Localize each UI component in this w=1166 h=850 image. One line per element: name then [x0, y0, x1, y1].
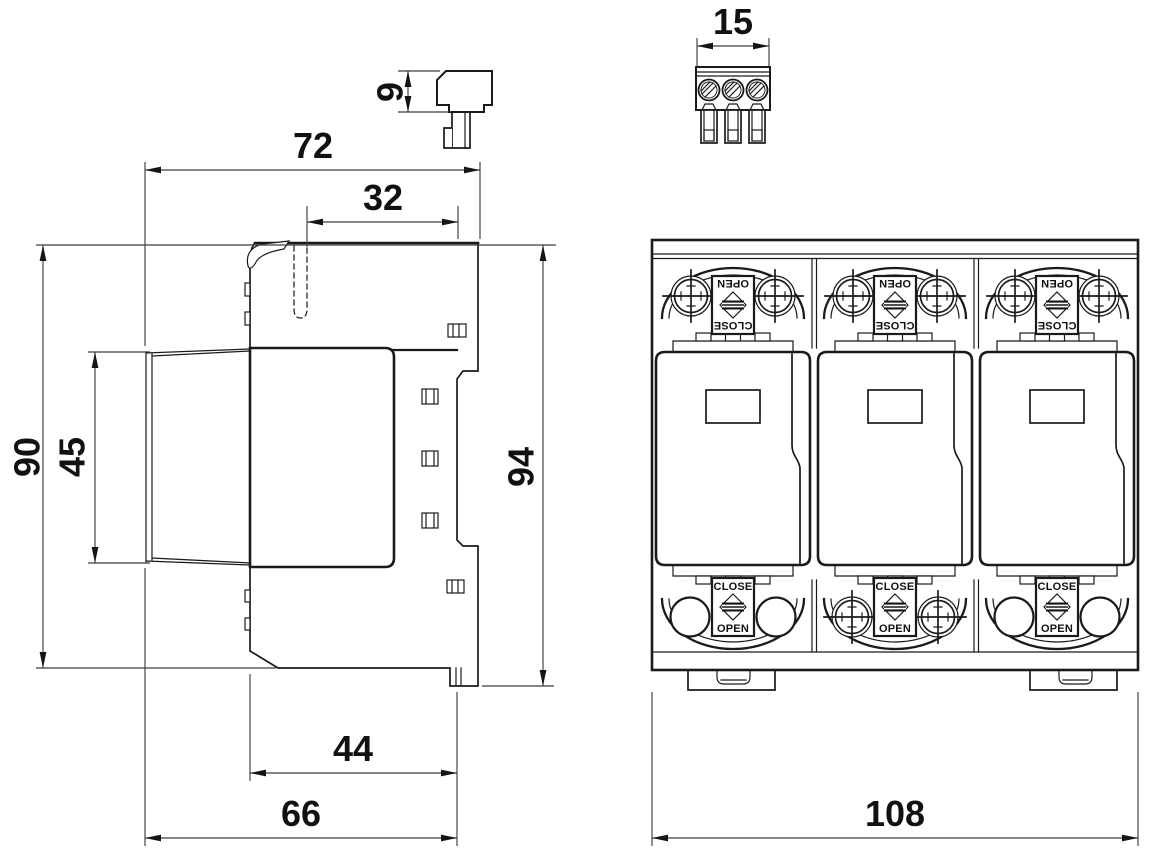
- dimension-arrow: [652, 835, 668, 842]
- dimension-arrow: [250, 770, 266, 777]
- dimension-72-label: 72: [293, 125, 333, 166]
- connector-pin-3: [749, 110, 765, 143]
- dimension-arrow: [697, 43, 713, 50]
- dimension-arrow: [92, 547, 99, 563]
- connector-head: [437, 71, 492, 112]
- dimension-32: 32: [307, 177, 458, 247]
- mounting-foot-right-detail: [1059, 670, 1092, 684]
- module-2-body: [818, 352, 972, 565]
- dimension-lines: [697, 38, 769, 66]
- dimension-108-label: 108: [865, 793, 925, 834]
- dimension-90: 90: [7, 245, 276, 668]
- dimension-45-label: 45: [52, 437, 93, 477]
- mounting-foot-left-detail: [717, 670, 750, 684]
- dimension-lines: [88, 352, 150, 563]
- dimension-arrow: [92, 352, 99, 368]
- front-view: [652, 240, 1138, 690]
- dimension-15: 15: [697, 1, 769, 66]
- side-terminal-window: [448, 324, 466, 337]
- dimension-94: 94: [482, 245, 554, 686]
- dimension-arrow: [441, 835, 457, 842]
- dimension-94-label: 94: [501, 447, 542, 487]
- dimension-45: 45: [52, 352, 150, 563]
- edge-bump: [245, 618, 250, 630]
- dimension-66-label: 66: [281, 793, 321, 834]
- dimension-arrow: [40, 245, 47, 261]
- connector-hook: [444, 128, 452, 148]
- connector-pin-2: [725, 110, 741, 143]
- edge-bump: [245, 312, 250, 325]
- dimension-108: 108: [652, 692, 1138, 846]
- technical-drawing: OPEN CLOSE CLOSE OPEN: [0, 0, 1166, 850]
- module-front-face: [146, 352, 152, 562]
- side-terminal-window: [422, 451, 438, 466]
- dimension-arrow: [540, 245, 547, 261]
- dimension-15-label: 15: [713, 1, 753, 42]
- connector-pin-1: [701, 110, 717, 143]
- side-view: [146, 241, 478, 686]
- dimension-arrow: [145, 835, 161, 842]
- module-draft-lines: [146, 349, 250, 565]
- module-1-body: [656, 352, 810, 565]
- edge-bump: [245, 590, 250, 602]
- plug-module-side: [250, 348, 394, 567]
- dimension-9-label: 9: [370, 82, 411, 102]
- side-terminal-window: [422, 389, 438, 404]
- dimension-arrow: [307, 219, 323, 226]
- side-terminal-window: [422, 513, 438, 528]
- dimension-arrow: [464, 167, 480, 174]
- dimension-arrow: [145, 167, 161, 174]
- module-3-body: [980, 352, 1134, 565]
- dimension-arrow: [753, 43, 769, 50]
- connector-stem: [452, 112, 470, 148]
- dimension-90-label: 90: [7, 437, 48, 477]
- dimension-arrow: [40, 652, 47, 668]
- dimension-32-label: 32: [363, 177, 403, 218]
- side-terminal-window: [447, 580, 464, 593]
- dimension-arrow: [540, 670, 547, 686]
- connector-side-view: [437, 71, 492, 148]
- dimension-arrow: [1122, 835, 1138, 842]
- edge-bump: [245, 283, 250, 296]
- dimension-arrow: [441, 770, 457, 777]
- drawing-page: OPEN CLOSE CLOSE OPEN: [0, 0, 1166, 850]
- dimension-arrow: [442, 219, 458, 226]
- connector-front-view: [696, 67, 770, 143]
- dimension-44-label: 44: [333, 728, 373, 769]
